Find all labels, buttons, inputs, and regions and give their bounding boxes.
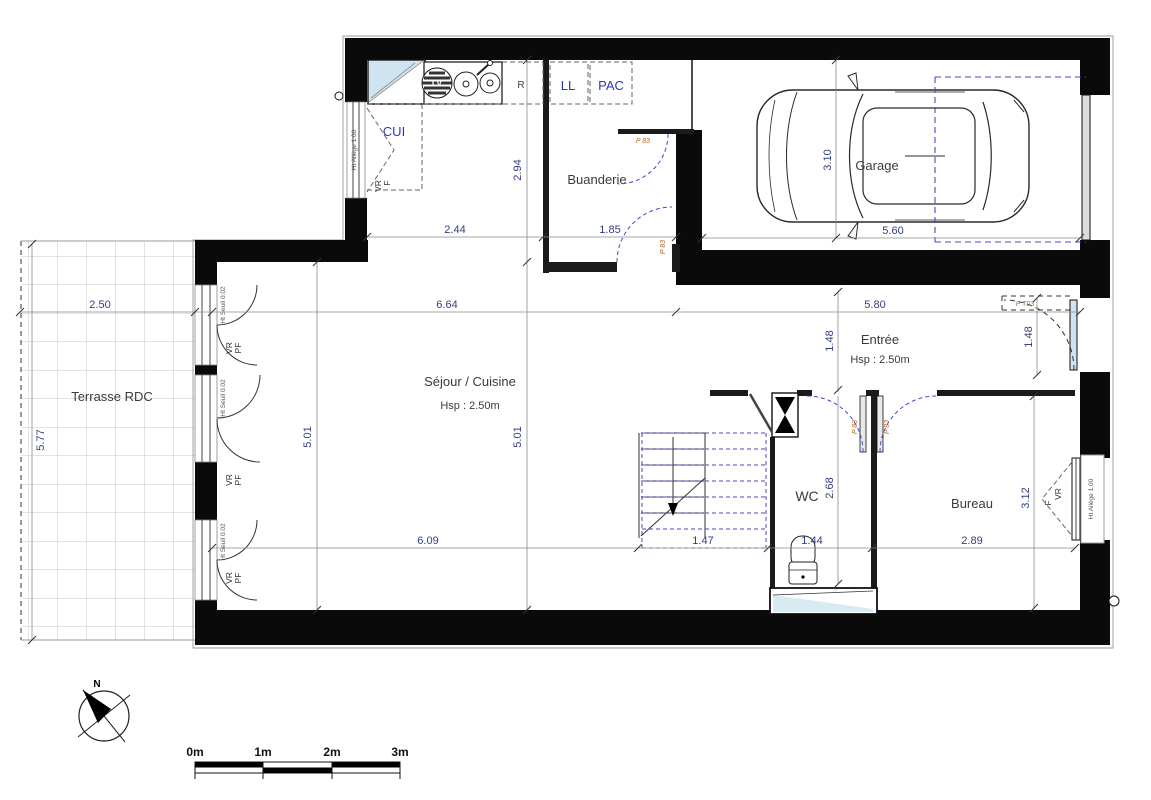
left-wall-windows: VR PF VR PF VR PF Ht Seuil 0.02 Ht Seuil… [195, 285, 260, 600]
entree-area: Entrée Hsp : 2.50m P 83 P 83 P T03 [807, 296, 1077, 452]
heatpump-label: PAC [598, 78, 624, 93]
window-sill-note-3: Ht Seuil 0.02 [220, 523, 227, 561]
car-drawing [757, 73, 1029, 239]
garage-door-panel [1082, 95, 1090, 240]
dim-kitchen-h: 2.94 [512, 159, 524, 180]
dim-entree-door: 1.48 [1023, 326, 1035, 347]
north-label: N [93, 679, 100, 690]
dim-entree-w: 5.80 [864, 299, 885, 311]
dim-garage-w: 5.60 [882, 225, 903, 237]
door-label-p83-4: P 83 [884, 420, 891, 434]
floor-plan-drawing: Terrasse RDC [0, 0, 1151, 800]
sejour-height-note: Hsp : 2.50m [440, 400, 499, 412]
entree-height-note: Hsp : 2.50m [850, 354, 909, 366]
sink-bowl-left [454, 72, 478, 96]
window-sill-note-1: Ht Seuil 0.02 [220, 286, 227, 324]
fridge-label: R [517, 80, 524, 91]
dim-terrasse-h: 5.77 [35, 429, 47, 450]
dim-entree-left: 1.48 [824, 330, 836, 351]
scale-0m: 0m [186, 745, 203, 759]
staircase [639, 433, 766, 548]
washer-label: LL [561, 78, 575, 93]
dim-wc-w: 1.44 [801, 535, 822, 547]
dim-garage-h: 3.10 [822, 149, 834, 170]
garage-area: Garage [757, 73, 1090, 242]
door-label-p83-3: P 83 [852, 420, 859, 434]
dim-sejour-top: 6.64 [436, 299, 457, 311]
bureau-shutter-f: F [1043, 500, 1053, 505]
scale-bar: 0m 1m 2m 3m [186, 745, 408, 779]
dishwasher-label: LV [432, 78, 443, 88]
scale-2m: 2m [323, 745, 340, 759]
room-label-sejour: Séjour / Cuisine [424, 374, 516, 389]
door-label-p83-1: P 83 [636, 138, 650, 145]
scale-1m: 1m [254, 745, 271, 759]
wc-door-leaf [750, 394, 772, 432]
kitchen-label: CUI [383, 124, 405, 139]
dim-buanderie-w: 1.85 [599, 224, 620, 236]
room-label-wc: WC [795, 488, 818, 504]
door-leaf-sejour [860, 396, 866, 452]
downpipe-top [335, 92, 343, 100]
dim-kitchen-w: 2.44 [444, 224, 465, 236]
window-label-pf-2: PF [233, 475, 243, 486]
kitchen-shutter-f: F [382, 180, 392, 185]
north-compass: N [78, 679, 130, 742]
buanderie-area: Buanderie P 83 P 83 [567, 134, 672, 262]
window-label-pf-1: PF [233, 343, 243, 354]
stair-upper-flight [642, 433, 766, 548]
sejour-area: Séjour / Cuisine Hsp : 2.50m [424, 374, 516, 412]
dim-bureau-h: 3.12 [1020, 487, 1032, 508]
door-label-pt03: P T03 [1016, 301, 1035, 308]
door-label-p83-2: P 83 [660, 240, 667, 254]
dim-stair-w: 1.47 [692, 535, 713, 547]
bureau-window-allege: Ht Allège 1.00 [1088, 478, 1095, 519]
dim-terrasse-w: 2.50 [89, 299, 110, 311]
floor-plan-page: Terrasse RDC [0, 0, 1151, 800]
dim-sejour-bottom: 6.09 [417, 535, 438, 547]
room-label-bureau: Bureau [951, 496, 993, 511]
window-label-pf-3: PF [233, 573, 243, 584]
dim-sejour-left: 5.01 [302, 426, 314, 447]
kitchen-window-open-symbol [367, 108, 394, 192]
room-label-garage: Garage [855, 158, 898, 173]
toilet-tank [789, 562, 817, 584]
dim-bureau-w: 2.89 [961, 535, 982, 547]
kitchen-window-allege: Ht Allège 1.00 [351, 129, 358, 170]
window-sill-note-2: Ht Seuil 0.02 [220, 379, 227, 417]
room-label-entree: Entrée [861, 332, 899, 347]
dim-sejour-mid: 5.01 [512, 426, 524, 447]
room-label-buanderie: Buanderie [567, 172, 626, 187]
downpipe-bottom [1109, 596, 1119, 606]
room-label-terrasse: Terrasse RDC [71, 389, 153, 404]
scale-3m: 3m [391, 745, 408, 759]
dim-wc-h: 2.68 [824, 477, 836, 498]
north-needle [83, 690, 111, 723]
door-leaf-bureau [877, 396, 883, 452]
sink-bowl-right [480, 73, 500, 93]
bureau-shutter-vr: VR [1053, 488, 1063, 500]
